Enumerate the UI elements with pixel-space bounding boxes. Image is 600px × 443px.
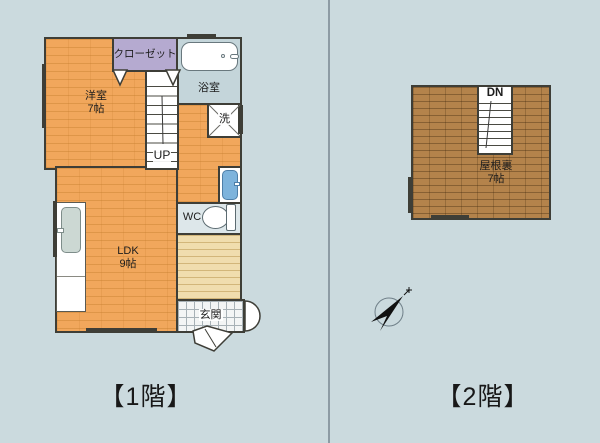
- kitchen-sink-icon: [61, 207, 81, 253]
- window-attic-left: [408, 177, 413, 213]
- label-stairs-up: UP: [145, 149, 179, 162]
- floor2-caption: 【2階】: [383, 377, 583, 413]
- north-arrow-icon: [371, 296, 403, 331]
- panel-divider: [328, 0, 330, 443]
- kitchen-faucet-icon: [57, 228, 64, 233]
- window-western-left: [42, 64, 46, 128]
- vanity-faucet-icon: [234, 182, 240, 186]
- label-ldk: LDK 9帖: [92, 245, 164, 271]
- floor1-caption: 【1階】: [46, 377, 246, 413]
- label-wc: WC: [179, 211, 205, 224]
- compass-circle-icon: [375, 298, 403, 326]
- western-room-name: 洋室: [85, 90, 107, 102]
- hallway: [176, 233, 242, 301]
- window-kitchen-left: [53, 201, 57, 257]
- label-entrance: 玄関: [176, 309, 245, 322]
- label-western-room: 洋室 7帖: [60, 90, 132, 116]
- label-closet: クローゼット: [112, 48, 178, 61]
- bathtub-faucet-icon: [230, 54, 239, 59]
- counter-divider: [57, 276, 85, 277]
- toilet-bowl-icon: [202, 206, 229, 229]
- label-stairs-down: DN: [477, 87, 513, 100]
- window-ldk-bottom: [86, 328, 157, 333]
- bathtub-drain-icon: [221, 54, 225, 58]
- entrance-door-swing-icon: [245, 301, 260, 331]
- toilet-tank-icon: [226, 204, 236, 231]
- western-room-size: 7帖: [87, 103, 104, 115]
- north-arrow-tip: [404, 290, 409, 295]
- window-attic-bottom: [431, 215, 469, 220]
- label-laundry: 洗: [207, 113, 242, 126]
- window-bath-top: [187, 34, 216, 39]
- label-bath: 浴室: [176, 82, 242, 95]
- label-attic: 屋根裏 7帖: [460, 160, 532, 186]
- stair-treads: [479, 103, 511, 150]
- floorplan-canvas: 洋室 7帖 クローゼット 浴室 洗 UP WC LDK 9帖 玄関 【1階】: [0, 0, 600, 443]
